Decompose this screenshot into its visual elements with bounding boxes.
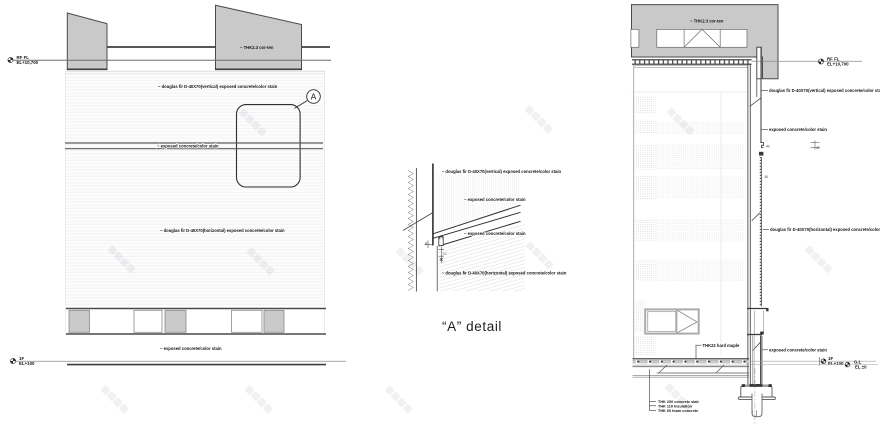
svg-text:~ exposed concrete/color stain: ~ exposed concrete/color stain bbox=[157, 143, 219, 148]
svg-text:~ douglas fir D-40X70(horizont: ~ douglas fir D-40X70(horizontal) expose… bbox=[160, 228, 285, 233]
svg-text:~ THK2.3 cor-ten: ~ THK2.3 cor-ten bbox=[240, 45, 274, 50]
svg-text:~ exposed concrete/color stain: ~ exposed concrete/color stain bbox=[464, 231, 526, 236]
svg-text:~ exposed concrete/color stain: ~ exposed concrete/color stain bbox=[160, 346, 222, 351]
svg-text:~ douglas fir D-40X70(horizont: ~ douglas fir D-40X70(horizontal) expose… bbox=[442, 271, 567, 276]
svg-text:EL ±0: EL ±0 bbox=[855, 365, 867, 370]
svg-text:EL+100: EL+100 bbox=[828, 361, 844, 366]
svg-text:40: 40 bbox=[766, 145, 770, 149]
svg-text:EL+10,700: EL+10,700 bbox=[827, 61, 849, 66]
svg-text:~ THK2.3 cor-ten: ~ THK2.3 cor-ten bbox=[690, 18, 724, 23]
svg-text:~ exposed concrete/color stain: ~ exposed concrete/color stain bbox=[464, 197, 526, 202]
svg-text:THK22 hard maple: THK22 hard maple bbox=[703, 343, 740, 348]
svg-text:A: A bbox=[311, 92, 317, 102]
svg-text:exposed concrete/color stain: exposed concrete/color stain bbox=[769, 127, 827, 132]
svg-text:douglas fir D-40X70(vertical): douglas fir D-40X70(vertical) exposed co… bbox=[769, 88, 880, 93]
svg-text:40: 40 bbox=[816, 146, 820, 150]
svg-text:~ douglas fir D-40X70(vertical: ~ douglas fir D-40X70(vertical) exposed … bbox=[442, 169, 562, 174]
svg-text:~ douglas fir D-40X70(vertical: ~ douglas fir D-40X70(vertical) exposed … bbox=[158, 84, 278, 89]
svg-text:exposed concrete/color stain: exposed concrete/color stain bbox=[769, 348, 827, 353]
svg-text:40: 40 bbox=[765, 175, 769, 179]
svg-text:douglas fir D-40X70(horizontal: douglas fir D-40X70(horizontal) exposed … bbox=[770, 227, 880, 232]
svg-text:40: 40 bbox=[424, 242, 428, 246]
svg-text:“A” detail: “A” detail bbox=[442, 319, 502, 334]
svg-text:THK 60 foam concrete: THK 60 foam concrete bbox=[658, 409, 698, 413]
svg-text:10: 10 bbox=[443, 252, 447, 256]
svg-text:EL+100: EL+100 bbox=[19, 361, 35, 366]
